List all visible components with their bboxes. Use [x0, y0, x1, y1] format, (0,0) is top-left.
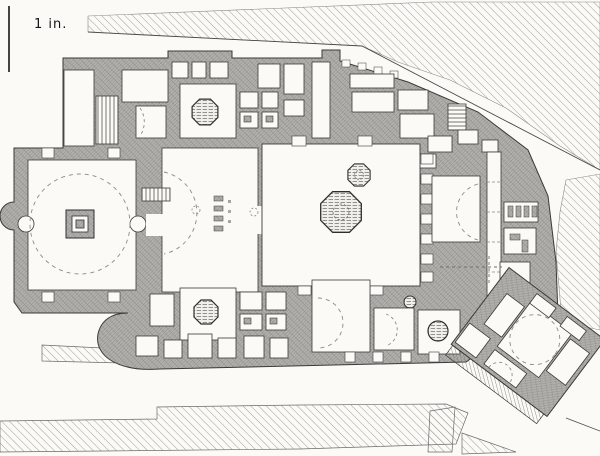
court-door-n2	[358, 136, 372, 146]
column-base-b	[214, 206, 223, 211]
room-nw-c	[136, 106, 166, 138]
staircase-ne	[448, 104, 466, 130]
fountain-octagon-small	[348, 164, 370, 186]
unexcavated-east-hatch	[556, 174, 600, 330]
room-srow-4	[218, 338, 236, 358]
hall-middle	[162, 148, 258, 292]
door-west-hall	[146, 214, 164, 236]
court-door-s3	[370, 286, 383, 295]
floor-plan-figure: 1 in.	[0, 0, 600, 456]
colonnade-gap-7	[421, 272, 433, 282]
annex-edge-line	[566, 418, 600, 431]
niche-east	[130, 216, 146, 232]
colonnade-gap-4	[421, 214, 433, 224]
shop-opening-c	[374, 67, 382, 74]
room-s-b	[266, 292, 286, 310]
colonnade-gap-1	[421, 154, 433, 164]
street-fragment-hatch-b	[462, 433, 516, 454]
furnace-block-a	[244, 116, 251, 122]
basin-small-south	[404, 296, 416, 308]
room-srow-1	[136, 336, 158, 356]
room-ne-d	[400, 114, 434, 138]
room-srow-2	[164, 340, 182, 358]
room-furnace-a	[240, 92, 258, 108]
pilaster-nw	[42, 148, 54, 158]
scale-label: 1 in.	[34, 17, 67, 32]
room-s-arc	[374, 308, 414, 350]
room-top-row-c	[210, 62, 228, 78]
furnace-block-c	[244, 318, 251, 324]
column-base-a	[214, 196, 223, 201]
room-ne-a	[350, 74, 394, 88]
niche-west	[18, 216, 34, 232]
room-srow-6	[270, 338, 288, 358]
column-base-c	[214, 216, 223, 221]
fountain-octagon-large	[321, 192, 362, 233]
room-srow-5	[244, 336, 264, 358]
room-east-a	[504, 228, 536, 254]
court-door-s1	[298, 286, 311, 295]
wall-notch-s1	[345, 352, 355, 362]
latrine-seat-2	[516, 206, 521, 217]
pilaster-sw	[42, 292, 54, 302]
room-ne-b	[352, 92, 394, 112]
colonnade-gap-5	[421, 234, 433, 244]
shop-opening-b	[358, 63, 366, 70]
street-south-hatch	[0, 404, 468, 452]
room-east-a-div2	[522, 240, 528, 252]
staircase-nw	[96, 96, 118, 144]
room-north-mid-a	[284, 64, 304, 94]
room-ne-g	[482, 140, 498, 152]
room-top-row-b	[192, 62, 206, 78]
room-ne-f	[458, 130, 478, 144]
room-sw-a	[150, 294, 174, 326]
latrine-seat-1	[508, 206, 513, 217]
latrine-seat-4	[532, 206, 537, 217]
basin-round-south	[428, 321, 448, 341]
basin-octagon-north	[192, 99, 218, 125]
column-base-d	[214, 226, 223, 231]
room-s-a	[240, 292, 262, 310]
pilaster-se	[108, 292, 120, 302]
column-dot-c	[228, 220, 231, 223]
fountain-core-west	[76, 220, 84, 228]
room-top-row-a	[172, 62, 188, 78]
basin-octagon-south	[194, 300, 218, 324]
hall-east	[432, 176, 480, 242]
room-nw-a	[64, 70, 94, 146]
room-ne-e	[428, 136, 452, 152]
wall-notch-s3	[401, 352, 411, 362]
furnace-block-d	[270, 318, 277, 324]
column-dot-b	[228, 210, 231, 213]
room-north-mid-b	[284, 100, 304, 116]
room-furnace-c	[262, 92, 278, 108]
shop-opening-a	[342, 60, 350, 67]
room-north-mid-c	[258, 64, 280, 88]
room-ne-c	[398, 90, 428, 110]
colonnade-gap-6	[421, 254, 433, 264]
hall-south	[312, 280, 370, 352]
room-nw-b	[122, 70, 168, 102]
colonnade-gap-3	[421, 194, 433, 204]
colonnade-gap-2	[421, 174, 433, 184]
column-dot-a	[228, 200, 231, 203]
court-door-n1	[292, 136, 306, 146]
corridor-north	[312, 62, 330, 138]
room-srow-3	[188, 334, 212, 358]
staircase-middle	[142, 188, 170, 201]
wall-notch-s2	[373, 352, 383, 362]
latrine-seat-3	[524, 206, 529, 217]
wall-notch-s4	[429, 352, 439, 362]
furnace-block-b	[266, 116, 273, 122]
street-fragment-hatch-a	[428, 407, 455, 452]
pilaster-ne	[108, 148, 120, 158]
room-east-a-div1	[510, 234, 520, 240]
